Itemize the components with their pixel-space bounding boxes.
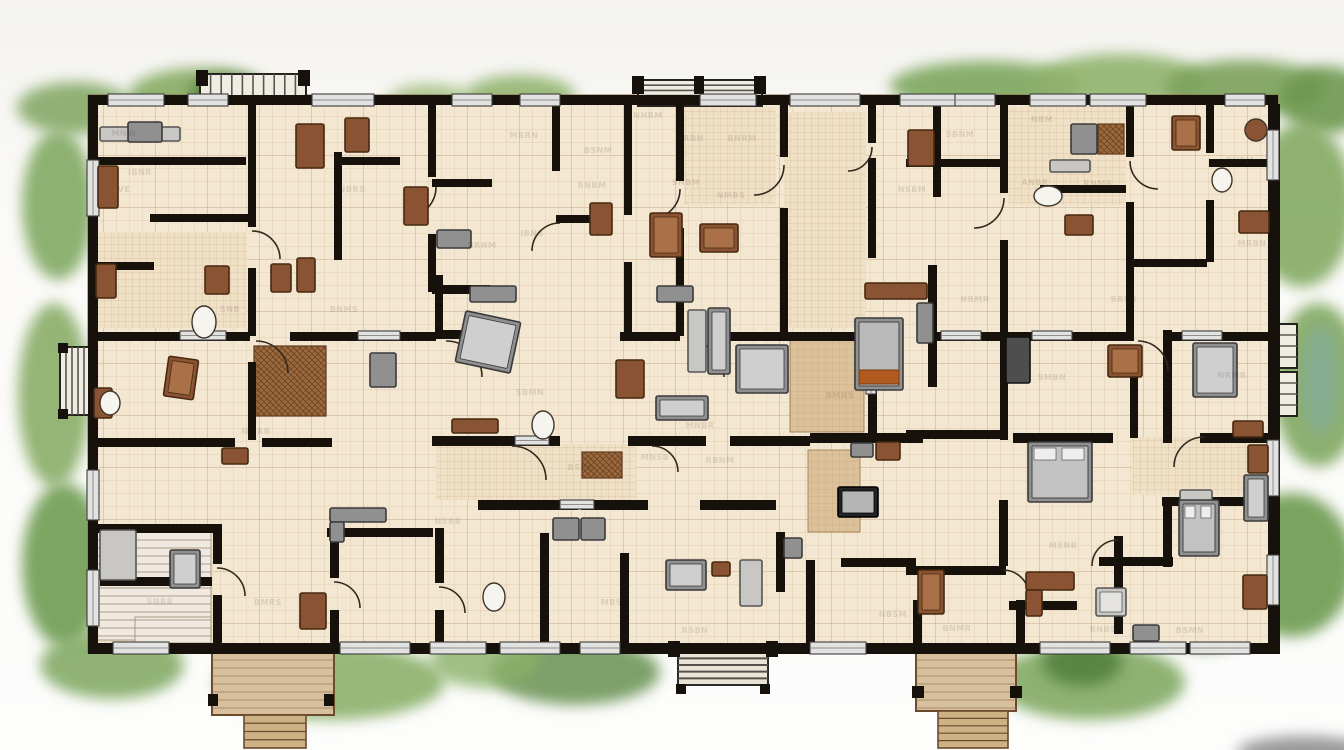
fixture-oval: [483, 583, 505, 611]
furniture-item: [855, 318, 903, 390]
wall-segment: [1126, 105, 1134, 157]
tiled-floor-grid: [784, 112, 866, 328]
wall-segment: [435, 528, 444, 583]
room-label: BSNM: [584, 146, 613, 155]
room-label: NBM: [1031, 115, 1053, 124]
wall-segment: [150, 214, 250, 222]
wall-segment: [624, 105, 632, 215]
furniture-item: [590, 203, 612, 235]
room-label: RBNM: [706, 456, 735, 465]
room-label: NSRB: [435, 517, 462, 526]
room-label: ANBR: [1021, 178, 1048, 187]
room-label: BMNS: [826, 391, 855, 400]
furniture-item: [296, 124, 324, 168]
furniture-item: [616, 360, 644, 398]
furniture-item: [784, 538, 802, 558]
room-label: SBMN: [516, 388, 545, 397]
furniture-item: [650, 213, 682, 257]
furniture-item: [1193, 343, 1237, 397]
room-label: BNMR: [943, 624, 972, 633]
fixture-oval: [1212, 168, 1232, 192]
wall-segment: [841, 558, 916, 567]
furniture-item: [1179, 500, 1219, 556]
furniture-item: [370, 353, 396, 387]
furniture-item: [700, 224, 738, 252]
deck-post: [298, 70, 310, 86]
wall-segment: [248, 105, 256, 227]
room-label: MRBN: [1238, 239, 1267, 248]
wall-segment: [1163, 497, 1172, 567]
room-label: NMBS: [717, 191, 746, 200]
room-label: SNB: [220, 305, 240, 314]
room-label: SNRB: [147, 597, 174, 606]
greenery-blob: [22, 130, 94, 280]
furniture-item: [666, 560, 706, 590]
porch-railing-post: [208, 694, 218, 706]
wall-segment: [428, 105, 436, 177]
furniture-item: [98, 166, 118, 208]
furniture-item: [437, 230, 471, 248]
room-label: SBNM: [946, 130, 975, 139]
room-label: MSNB: [1049, 541, 1078, 550]
furniture-item: [452, 419, 498, 433]
furniture-item: [163, 356, 198, 400]
wall-segment: [262, 438, 332, 447]
room-label: NBSM: [879, 610, 908, 619]
furniture-item: [581, 518, 605, 540]
room-label: NSBM: [898, 185, 927, 194]
room-label: RNMB: [1084, 179, 1113, 188]
room-label: MNW: [112, 129, 137, 138]
deck-post: [58, 343, 68, 353]
rug-weave: [1098, 124, 1124, 154]
wall-segment: [780, 208, 788, 336]
wall-segment: [1206, 200, 1214, 262]
room-label: BNRM: [728, 134, 757, 143]
furniture-item: [1108, 345, 1142, 377]
furniture-item: [96, 264, 116, 298]
wall-segment: [432, 179, 492, 187]
furniture-item: [1243, 575, 1267, 609]
furniture-item: [656, 396, 708, 420]
furniture-item: [865, 283, 927, 299]
room-label: IBNR: [128, 168, 152, 177]
porch-railing-post: [324, 694, 334, 706]
wall-segment: [676, 105, 684, 181]
furniture-item: [1050, 160, 1090, 172]
furniture-item: [330, 522, 344, 542]
deck-post: [196, 70, 208, 86]
room-label: BNSM: [1226, 156, 1255, 165]
wood-floor-grid: [790, 340, 864, 432]
porch-railing-post: [1010, 686, 1022, 698]
wall-segment: [628, 436, 706, 446]
fixture-oval: [192, 306, 216, 338]
deck-post: [58, 409, 68, 419]
floor-plan-drawing: MNWIBNRVENBRSSNBBNMSNHBMBSNMNRBNBNRMMBRN…: [0, 0, 1344, 750]
wall-segment: [1099, 557, 1173, 566]
wall-segment: [1126, 202, 1134, 334]
wall-segment: [213, 524, 222, 564]
room-label: SNBM: [672, 178, 701, 187]
greenery-blob: [1302, 325, 1338, 435]
wall-segment: [624, 262, 632, 336]
wall-segment: [428, 234, 436, 292]
floor-plan-canvas: MNWIBNRVENBRSSNBBNMSNHBMBSNMNRBNBNRMMBRN…: [0, 0, 1344, 750]
deck-post: [754, 76, 766, 94]
furniture-item: [205, 266, 229, 294]
furniture-item: [688, 310, 706, 372]
room-label: NMRB: [242, 427, 271, 436]
room-label: MBSN: [601, 598, 630, 607]
furniture-item: [708, 308, 730, 374]
furniture-item: [851, 443, 873, 457]
wall-segment: [999, 500, 1008, 566]
wall-segment: [620, 332, 680, 341]
hatched-floor-lines: [135, 617, 211, 643]
wall-segment: [334, 157, 400, 165]
wall-segment: [700, 500, 776, 510]
fixture-oval: [100, 391, 120, 415]
room-label: NBRS: [339, 185, 366, 194]
furniture-item: [740, 560, 762, 606]
deck-post: [694, 76, 704, 94]
furniture-item: [222, 448, 248, 464]
wall-segment: [213, 595, 222, 643]
wall-segment: [330, 610, 339, 643]
room-label: BSRN: [568, 463, 595, 472]
furniture-item: [1065, 215, 1093, 235]
room-label: NBMR: [961, 295, 990, 304]
room-label: IBNS: [520, 229, 544, 238]
furniture-item: [1071, 124, 1097, 154]
furniture-item: [271, 264, 291, 292]
furniture-item: [1026, 590, 1042, 616]
room-label: BSMN: [1176, 626, 1205, 635]
porch-walkway: [208, 653, 334, 748]
porch-deck-lines: [212, 653, 334, 715]
rug-weave: [254, 346, 326, 416]
wall-segment: [1000, 105, 1008, 193]
room-label: NHBM: [633, 111, 662, 120]
wall-segment: [726, 332, 788, 341]
furniture-item: [330, 508, 386, 522]
room-label: NRBN: [676, 134, 704, 143]
wall-segment: [780, 105, 788, 157]
wall-segment: [1009, 601, 1077, 610]
furniture-item: [736, 345, 788, 393]
wall-segment: [334, 152, 342, 260]
furniture-item: [100, 530, 136, 580]
furniture-item: [345, 118, 369, 152]
furniture-item: [1096, 588, 1126, 616]
furniture-item: [470, 286, 516, 302]
furniture-item: [1244, 475, 1268, 521]
furniture-item: [170, 550, 200, 588]
wall-segment: [540, 533, 549, 643]
furniture-item: [1026, 572, 1074, 590]
wall-segment: [730, 436, 810, 446]
wall-segment: [435, 610, 444, 643]
wall-segment: [88, 438, 235, 447]
furniture-item: [404, 187, 428, 225]
greenery-blob: [1237, 736, 1344, 750]
furniture-item: [838, 487, 878, 517]
wall-segment: [1114, 536, 1123, 634]
wall-segment: [806, 560, 815, 643]
room-label: BMRS: [254, 598, 282, 607]
room-label: MNBR: [686, 421, 715, 430]
furniture-item: [1239, 211, 1269, 233]
furniture-item: [1028, 442, 1092, 502]
furniture-item: [908, 130, 934, 166]
furniture-item: [455, 311, 521, 374]
wall-segment: [435, 275, 443, 339]
furniture-item: [300, 593, 326, 629]
porch-railing-post: [912, 686, 924, 698]
furniture-item: [553, 518, 579, 540]
furniture-item: [1233, 421, 1263, 437]
furniture-item: [876, 442, 900, 460]
furniture-item: [297, 258, 315, 292]
furniture-item: [712, 562, 730, 576]
porch-walkway: [912, 653, 1022, 748]
wall-segment: [868, 105, 876, 143]
furniture-item: [1133, 625, 1159, 641]
porch-deck-lines: [916, 653, 1016, 711]
room-label: RSBN: [682, 626, 709, 635]
wall-segment: [1163, 330, 1172, 443]
room-label: NRMB: [1218, 371, 1247, 380]
room-label: BRNS: [1111, 295, 1138, 304]
furniture-item: [1172, 116, 1200, 150]
wall-segment: [906, 430, 1006, 439]
porch-steps: [938, 711, 1008, 748]
room-label: MBRN: [510, 131, 539, 140]
room-label: BRNM: [468, 241, 497, 250]
stair-post: [676, 684, 686, 694]
room-label: SMBN: [1038, 373, 1067, 382]
wall-segment: [552, 105, 560, 171]
wall-segment: [1133, 259, 1207, 267]
wall-segment: [1206, 105, 1214, 153]
deck-post: [632, 76, 644, 94]
furniture-item: [657, 286, 693, 302]
fixture-oval: [1034, 186, 1062, 206]
furniture-item: [1248, 445, 1268, 473]
furniture-item: [918, 570, 944, 614]
fixture-oval: [1245, 119, 1267, 141]
room-label: RNBS: [1090, 625, 1117, 634]
furniture-item: [917, 303, 933, 343]
room-label: RNBM: [578, 181, 607, 190]
wall-segment: [96, 157, 246, 165]
room-label: BNMS: [330, 305, 359, 314]
wall-segment: [868, 158, 876, 258]
wall-segment: [248, 268, 256, 336]
fixture-oval: [532, 411, 554, 439]
room-label: VE: [118, 185, 131, 194]
room-label: MNSB: [641, 453, 670, 462]
stair-post: [760, 684, 770, 694]
furniture-item: [1006, 337, 1030, 383]
